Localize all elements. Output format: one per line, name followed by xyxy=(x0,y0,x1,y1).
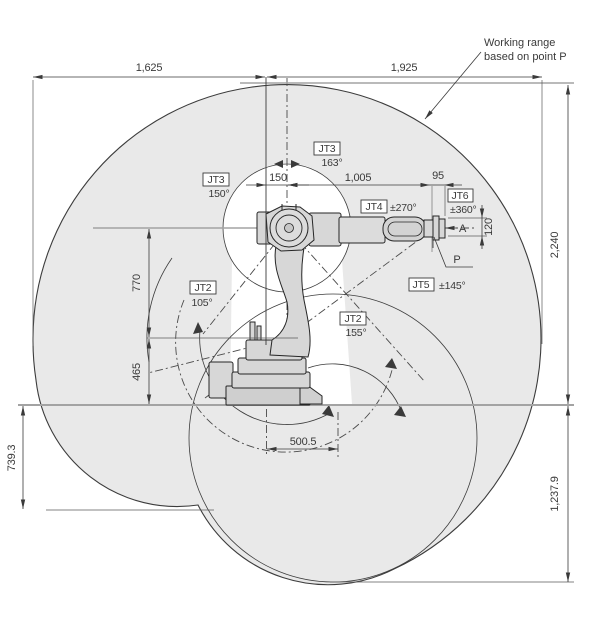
joint-name: JT2 xyxy=(195,282,212,294)
dim-lower-arm-text: 770 xyxy=(131,274,143,292)
shoulder-hub xyxy=(285,224,294,233)
elbow-housing xyxy=(309,213,341,246)
joint-angle: ±360° xyxy=(450,204,476,216)
joint-name: JT3 xyxy=(319,143,336,155)
joint-angle: 105° xyxy=(192,297,213,309)
dim-upper-arm-text: 1,005 xyxy=(345,172,372,184)
drawing-canvas: 1,625 1,925 2,240 1,237.9 739.3 770 465 … xyxy=(0,0,600,626)
wrist-tube xyxy=(383,217,426,241)
flange-plate xyxy=(433,216,439,240)
joint-angle: 155° xyxy=(346,327,367,339)
dim-total-height-text: 2,240 xyxy=(549,232,561,259)
joint-angle: 163° xyxy=(322,157,343,169)
dim-wrist-text: 95 xyxy=(432,170,444,182)
joint-name: JT4 xyxy=(366,201,383,213)
robot-working-range-drawing: 1,625 1,925 2,240 1,237.9 739.3 770 465 … xyxy=(0,0,600,626)
joint-name: JT2 xyxy=(345,313,362,325)
note-line2: based on point P xyxy=(484,51,567,63)
working-range-leader xyxy=(425,52,481,119)
joint-angle: ±270° xyxy=(390,202,416,214)
a-view-label: A xyxy=(459,223,467,235)
joint-name: JT6 xyxy=(452,190,469,202)
joint-angle: ±145° xyxy=(439,280,465,292)
flange-face xyxy=(439,219,445,238)
p-point-label: P xyxy=(453,254,460,266)
dim-offset-text: 150 xyxy=(269,172,287,184)
base-foot xyxy=(226,386,310,405)
dim-reach-right-text: 1,925 xyxy=(391,62,418,74)
dim-reach-left-text: 1,625 xyxy=(136,62,163,74)
note-line1: Working range xyxy=(484,37,555,49)
dim-below-left-text: 739.3 xyxy=(6,445,18,472)
dim-flange-text: 120 xyxy=(483,218,495,236)
joint-name: JT3 xyxy=(208,174,225,186)
dim-below-right-text: 1,237.9 xyxy=(549,476,561,511)
upper-arm-tube xyxy=(339,217,385,243)
joint-name: JT5 xyxy=(413,279,430,291)
pin-detail xyxy=(250,322,255,340)
dim-base-span-text: 500.5 xyxy=(290,436,317,448)
working-range-note: Working range based on point P xyxy=(484,37,567,63)
dim-base-height-text: 465 xyxy=(131,363,143,381)
joint-angle: 150° xyxy=(209,188,230,200)
